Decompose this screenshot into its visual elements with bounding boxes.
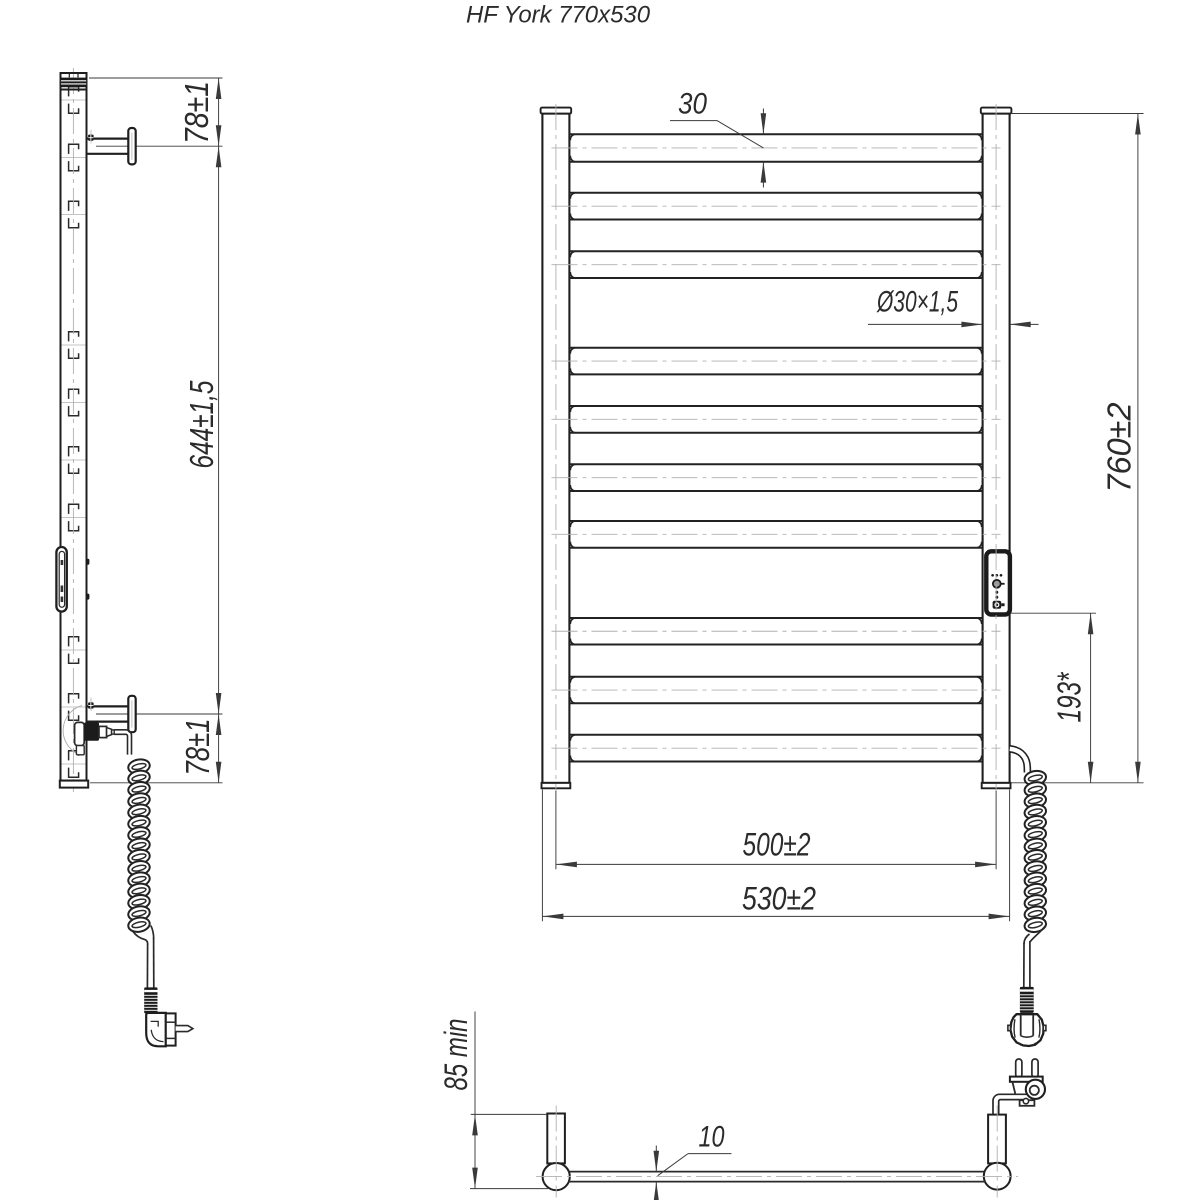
svg-text:760±2: 760±2 (1102, 402, 1139, 492)
svg-text:644±1,5: 644±1,5 (184, 380, 221, 468)
svg-text:HF York 770x530: HF York 770x530 (466, 1, 650, 28)
svg-text:78±1: 78±1 (179, 81, 216, 144)
svg-text:500±2: 500±2 (743, 827, 811, 863)
svg-text:530±2: 530±2 (742, 881, 816, 917)
svg-text:10: 10 (699, 1121, 725, 1154)
svg-text:78±1: 78±1 (180, 719, 217, 776)
svg-text:193*: 193* (1052, 672, 1089, 723)
svg-text:30: 30 (678, 88, 708, 121)
svg-text:85 min: 85 min (438, 1019, 474, 1091)
svg-text:Ø30×1,5: Ø30×1,5 (876, 285, 958, 318)
